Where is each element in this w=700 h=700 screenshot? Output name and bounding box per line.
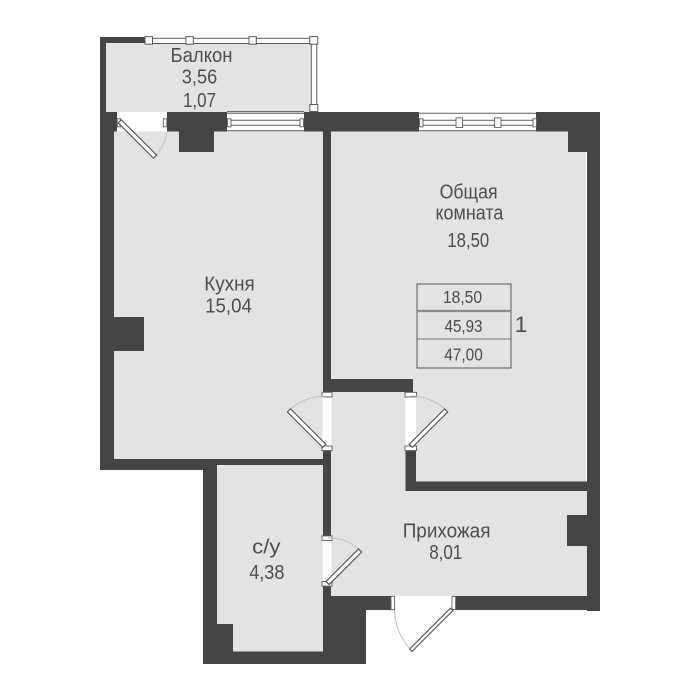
svg-text:4,38: 4,38	[249, 562, 284, 584]
svg-text:1: 1	[515, 312, 528, 337]
svg-text:1,07: 1,07	[183, 90, 216, 112]
svg-text:45,93: 45,93	[445, 316, 483, 336]
svg-text:18,50: 18,50	[447, 230, 489, 252]
svg-text:8,01: 8,01	[429, 542, 462, 564]
svg-text:15,04: 15,04	[205, 296, 252, 318]
svg-text:Кухня: Кухня	[204, 273, 255, 295]
svg-text:Общая: Общая	[440, 181, 498, 203]
svg-text:3,56: 3,56	[182, 66, 218, 88]
svg-text:комната: комната	[436, 202, 505, 224]
svg-text:Балкон: Балкон	[171, 45, 233, 67]
svg-text:18,50: 18,50	[443, 287, 482, 307]
svg-text:47,00: 47,00	[444, 345, 483, 365]
svg-text:Прихожая: Прихожая	[403, 520, 491, 542]
svg-text:с/у: с/у	[252, 537, 280, 559]
